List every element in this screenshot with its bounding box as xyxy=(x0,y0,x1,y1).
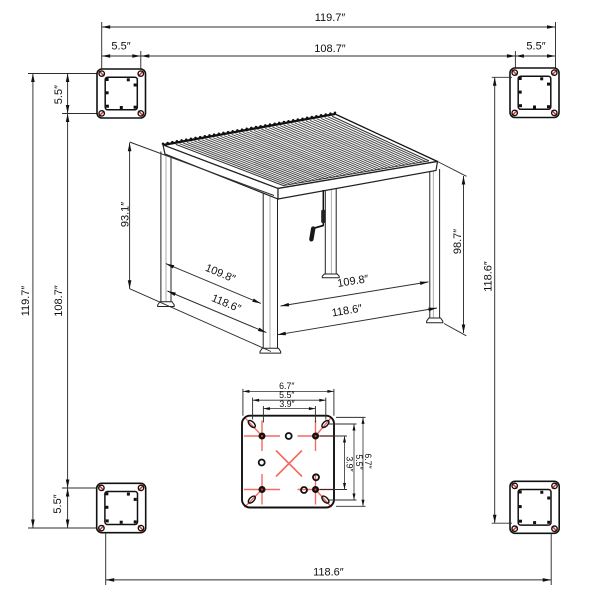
svg-text:118.6″: 118.6″ xyxy=(313,567,344,579)
svg-text:5.5″: 5.5″ xyxy=(52,494,64,513)
svg-text:118.6″: 118.6″ xyxy=(483,261,495,292)
svg-text:93.1″: 93.1″ xyxy=(120,202,132,227)
svg-text:5.5″: 5.5″ xyxy=(526,41,545,53)
svg-text:119.7″: 119.7″ xyxy=(315,12,346,24)
svg-text:3.9″: 3.9″ xyxy=(279,399,294,409)
svg-text:119.7″: 119.7″ xyxy=(20,286,32,317)
svg-text:5.5″: 5.5″ xyxy=(111,41,130,53)
svg-text:5.5″: 5.5″ xyxy=(53,85,65,104)
svg-text:108.7″: 108.7″ xyxy=(314,43,346,55)
svg-text:98.7″: 98.7″ xyxy=(452,229,464,254)
svg-text:5.5″: 5.5″ xyxy=(354,454,364,469)
svg-text:6.7″: 6.7″ xyxy=(363,453,373,468)
svg-text:3.9″: 3.9″ xyxy=(344,456,354,471)
svg-text:108.7″: 108.7″ xyxy=(53,285,65,317)
